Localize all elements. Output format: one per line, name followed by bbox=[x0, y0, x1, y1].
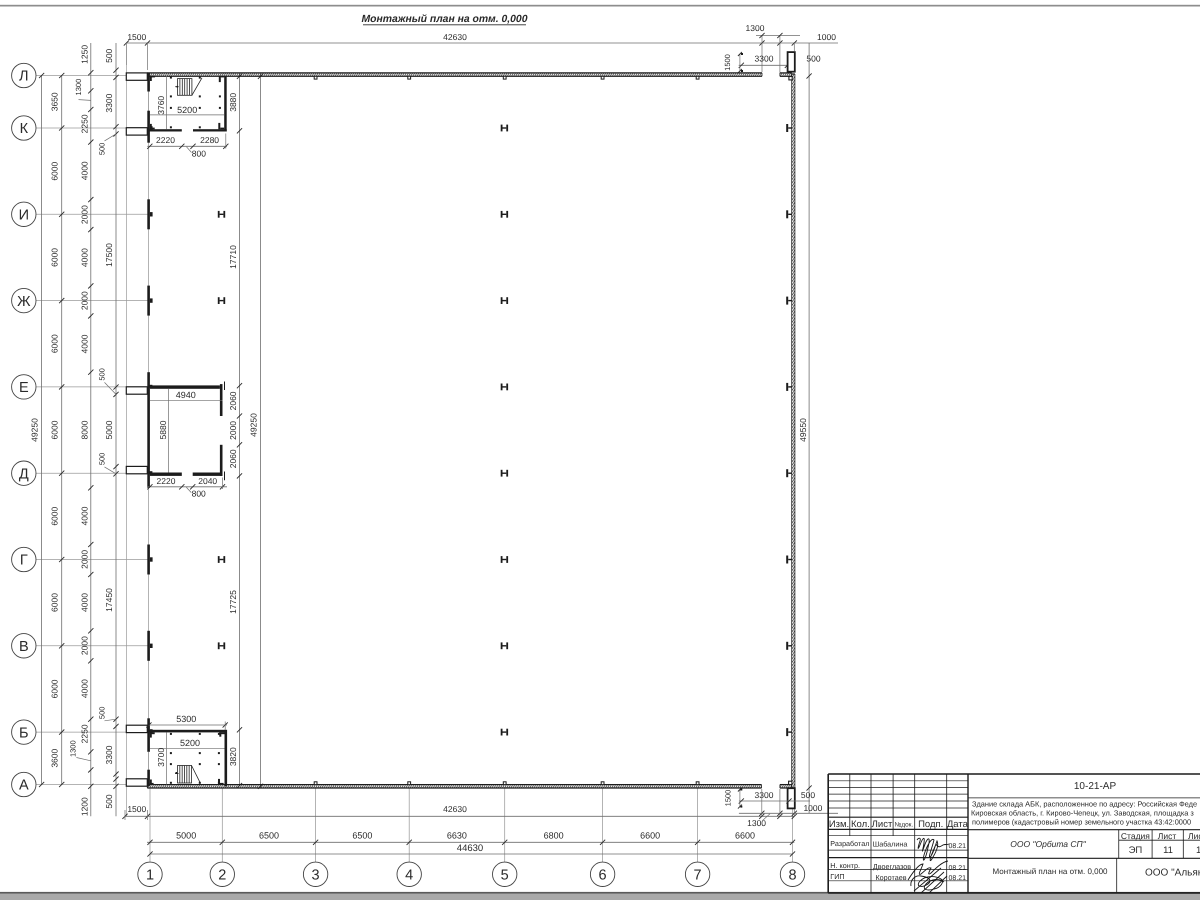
svg-text:4000: 4000 bbox=[80, 248, 90, 267]
svg-text:17725: 17725 bbox=[228, 590, 238, 614]
svg-text:Д: Д bbox=[19, 466, 29, 482]
svg-text:6600: 6600 bbox=[640, 831, 660, 841]
svg-text:1500: 1500 bbox=[723, 790, 732, 807]
svg-text:17450: 17450 bbox=[104, 588, 114, 612]
svg-text:1: 1 bbox=[146, 868, 154, 884]
svg-text:17500: 17500 bbox=[104, 243, 114, 267]
svg-text:800: 800 bbox=[192, 149, 206, 159]
svg-text:Кол.: Кол. bbox=[851, 819, 870, 830]
svg-text:2220: 2220 bbox=[156, 135, 175, 145]
svg-text:49250: 49250 bbox=[249, 413, 259, 437]
svg-text:6500: 6500 bbox=[259, 831, 279, 841]
svg-text:К: К bbox=[20, 121, 29, 137]
svg-text:5200: 5200 bbox=[177, 105, 197, 115]
svg-text:4000: 4000 bbox=[80, 334, 90, 353]
svg-text:10-21-АР: 10-21-АР bbox=[1074, 781, 1117, 792]
svg-text:Дата: Дата bbox=[947, 819, 969, 830]
svg-text:4000: 4000 bbox=[80, 593, 90, 612]
svg-text:1500: 1500 bbox=[127, 804, 146, 814]
svg-text:49550: 49550 bbox=[798, 418, 808, 442]
svg-text:3650: 3650 bbox=[50, 92, 60, 111]
svg-text:3820: 3820 bbox=[228, 747, 238, 766]
svg-text:08.21: 08.21 bbox=[949, 843, 967, 850]
svg-text:ЭП: ЭП bbox=[1129, 845, 1143, 856]
svg-text:42630: 42630 bbox=[443, 32, 467, 42]
svg-text:5000: 5000 bbox=[176, 831, 196, 841]
svg-text:1500: 1500 bbox=[127, 32, 146, 42]
svg-text:2060: 2060 bbox=[228, 449, 238, 468]
svg-text:500: 500 bbox=[801, 790, 815, 800]
svg-text:5880: 5880 bbox=[158, 420, 168, 439]
svg-text:3300: 3300 bbox=[104, 745, 114, 764]
svg-text:1200: 1200 bbox=[80, 797, 90, 816]
svg-text:800: 800 bbox=[192, 489, 206, 499]
svg-text:Листов: Листов bbox=[1188, 831, 1200, 841]
svg-text:2000: 2000 bbox=[80, 550, 90, 569]
svg-text:500: 500 bbox=[104, 794, 114, 808]
svg-text:Двоеглазов: Двоеглазов bbox=[873, 862, 911, 871]
svg-text:2220: 2220 bbox=[157, 476, 176, 486]
svg-text:6000: 6000 bbox=[50, 679, 60, 698]
svg-text:6800: 6800 bbox=[544, 831, 564, 841]
svg-text:Г: Г bbox=[20, 553, 28, 569]
svg-text:2000: 2000 bbox=[80, 291, 90, 310]
svg-text:6000: 6000 bbox=[50, 161, 60, 180]
svg-text:6000: 6000 bbox=[50, 248, 60, 267]
svg-text:4: 4 bbox=[405, 868, 413, 884]
svg-text:3700: 3700 bbox=[156, 748, 166, 767]
svg-text:4000: 4000 bbox=[80, 506, 90, 525]
svg-text:3300: 3300 bbox=[104, 93, 114, 112]
svg-text:3880: 3880 bbox=[228, 93, 238, 112]
svg-text:6000: 6000 bbox=[50, 593, 60, 612]
svg-text:5200: 5200 bbox=[180, 738, 200, 748]
svg-text:ООО "Альянс: ООО "Альянс bbox=[1145, 867, 1200, 878]
svg-text:2000: 2000 bbox=[228, 421, 238, 440]
svg-text:3760: 3760 bbox=[156, 96, 166, 115]
svg-text:2250: 2250 bbox=[80, 724, 90, 743]
svg-text:Лист: Лист bbox=[872, 819, 893, 830]
svg-text:2: 2 bbox=[218, 868, 226, 884]
svg-text:4000: 4000 bbox=[80, 679, 90, 698]
svg-text:42630: 42630 bbox=[443, 804, 467, 814]
svg-text:11: 11 bbox=[1163, 845, 1173, 856]
svg-text:1500: 1500 bbox=[723, 54, 732, 71]
svg-text:8: 8 bbox=[788, 868, 796, 884]
svg-text:1000: 1000 bbox=[817, 32, 836, 42]
svg-text:500: 500 bbox=[97, 368, 106, 381]
svg-text:08.21: 08.21 bbox=[949, 875, 967, 882]
svg-text:6600: 6600 bbox=[735, 831, 755, 841]
svg-text:1: 1 bbox=[1196, 845, 1200, 856]
svg-text:500: 500 bbox=[806, 54, 820, 64]
svg-text:Разработал: Разработал bbox=[830, 839, 869, 848]
svg-text:3300: 3300 bbox=[755, 54, 774, 64]
svg-text:4000: 4000 bbox=[80, 161, 90, 180]
svg-text:Ж: Ж bbox=[17, 294, 31, 310]
svg-text:Б: Б bbox=[19, 725, 29, 741]
svg-text:ГИП: ГИП bbox=[830, 872, 844, 881]
svg-text:И: И bbox=[19, 208, 29, 224]
svg-text:6630: 6630 bbox=[447, 831, 467, 841]
svg-text:2060: 2060 bbox=[228, 391, 238, 410]
svg-text:Шабалина: Шабалина bbox=[873, 839, 908, 848]
svg-text:Стадия: Стадия bbox=[1121, 831, 1150, 841]
svg-text:2250: 2250 bbox=[80, 114, 90, 133]
svg-text:Л: Л bbox=[19, 69, 29, 85]
svg-text:Е: Е bbox=[19, 380, 29, 396]
svg-text:3600: 3600 bbox=[50, 748, 60, 767]
svg-text:5: 5 bbox=[501, 868, 509, 884]
svg-text:2000: 2000 bbox=[80, 636, 90, 655]
svg-text:3: 3 bbox=[312, 868, 320, 884]
svg-text:Кировская область, г. Кирово-Ч: Кировская область, г. Кирово-Чепецк, ул.… bbox=[971, 808, 1194, 817]
svg-text:7: 7 bbox=[694, 868, 702, 884]
svg-text:полимеров (кадастровый номер з: полимеров (кадастровый номер земельного … bbox=[972, 817, 1191, 826]
svg-text:Лист: Лист bbox=[1158, 831, 1177, 841]
svg-text:Монтажный план на отм. 0,000: Монтажный план на отм. 0,000 bbox=[362, 14, 528, 25]
svg-text:17710: 17710 bbox=[228, 245, 238, 269]
svg-text:6500: 6500 bbox=[352, 831, 372, 841]
svg-text:1250: 1250 bbox=[80, 45, 90, 64]
svg-text:6000: 6000 bbox=[50, 506, 60, 525]
svg-text:2280: 2280 bbox=[200, 135, 219, 145]
svg-text:6000: 6000 bbox=[50, 420, 60, 439]
svg-text:4940: 4940 bbox=[176, 390, 196, 400]
svg-text:Здание склада АБК, расположенн: Здание склада АБК, расположенное по адре… bbox=[972, 799, 1197, 808]
svg-text:В: В bbox=[19, 639, 29, 655]
svg-text:ООО "Орбита СП": ООО "Орбита СП" bbox=[1010, 839, 1086, 849]
svg-text:500: 500 bbox=[97, 143, 106, 156]
svg-text:6000: 6000 bbox=[50, 334, 60, 353]
svg-text:А: А bbox=[19, 778, 29, 794]
svg-text:1300: 1300 bbox=[74, 79, 83, 96]
svg-text:500: 500 bbox=[104, 48, 114, 62]
svg-text:1000: 1000 bbox=[803, 803, 822, 813]
svg-text:Изм.: Изм. bbox=[829, 819, 849, 830]
svg-text:Н. контр.: Н. контр. bbox=[830, 861, 860, 870]
svg-text:08.21: 08.21 bbox=[949, 865, 967, 872]
svg-text:1300: 1300 bbox=[68, 740, 77, 757]
svg-text:500: 500 bbox=[97, 707, 106, 720]
svg-text:3300: 3300 bbox=[755, 790, 774, 800]
svg-text:2040: 2040 bbox=[198, 476, 217, 486]
svg-text:44630: 44630 bbox=[457, 843, 483, 854]
svg-text:8000: 8000 bbox=[80, 420, 90, 439]
svg-text:1300: 1300 bbox=[746, 23, 765, 33]
svg-text:2000: 2000 bbox=[80, 205, 90, 224]
svg-text:Коротаев: Коротаев bbox=[875, 873, 906, 882]
svg-text:Монтажный план на отм. 0,000: Монтажный план на отм. 0,000 bbox=[993, 867, 1108, 876]
svg-text:49250: 49250 bbox=[30, 418, 40, 442]
svg-text:500: 500 bbox=[97, 453, 106, 466]
svg-text:6: 6 bbox=[599, 868, 607, 884]
svg-text:Подп.: Подп. bbox=[918, 819, 943, 830]
svg-text:5000: 5000 bbox=[104, 420, 114, 439]
svg-text:5300: 5300 bbox=[176, 714, 196, 724]
svg-text:№док.: №док. bbox=[895, 822, 914, 829]
